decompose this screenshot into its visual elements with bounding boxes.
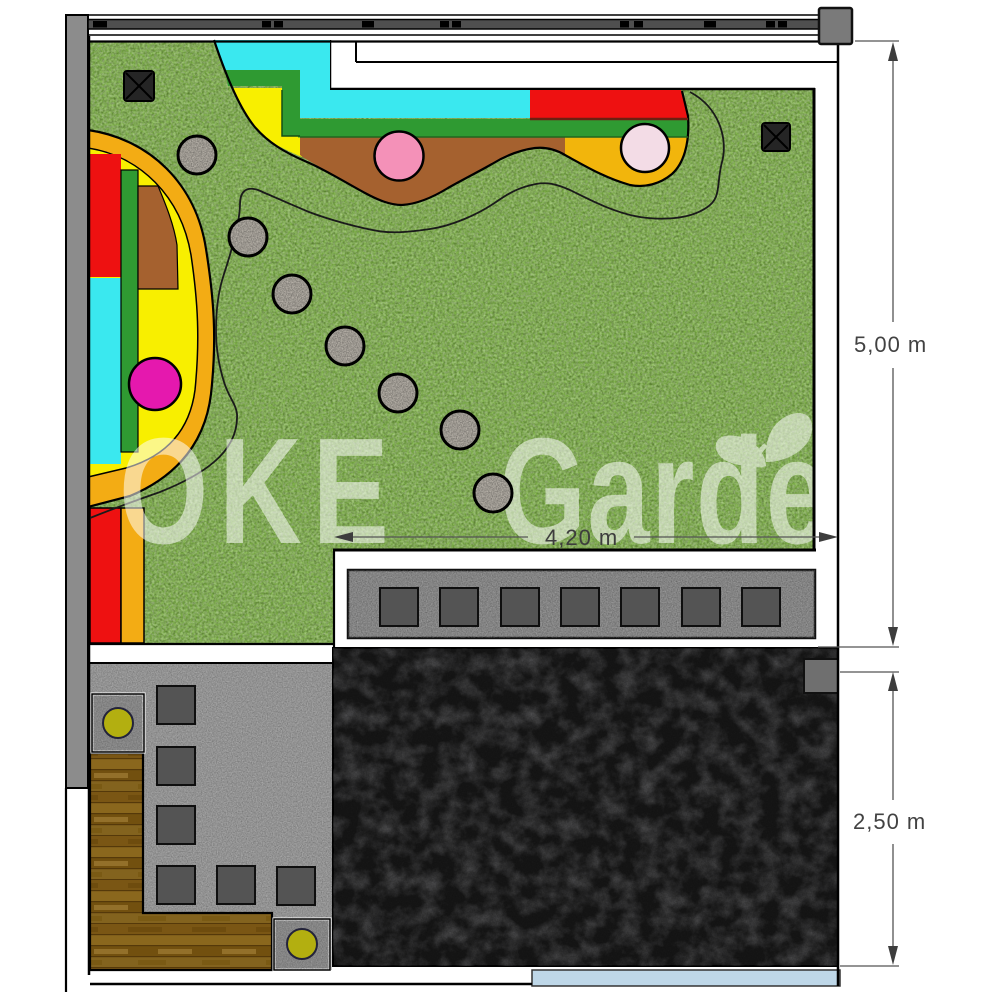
- svg-text:2,50 m: 2,50 m: [853, 809, 926, 834]
- svg-text:5,00 m: 5,00 m: [854, 332, 927, 357]
- svg-text:4,20 m: 4,20 m: [545, 525, 618, 550]
